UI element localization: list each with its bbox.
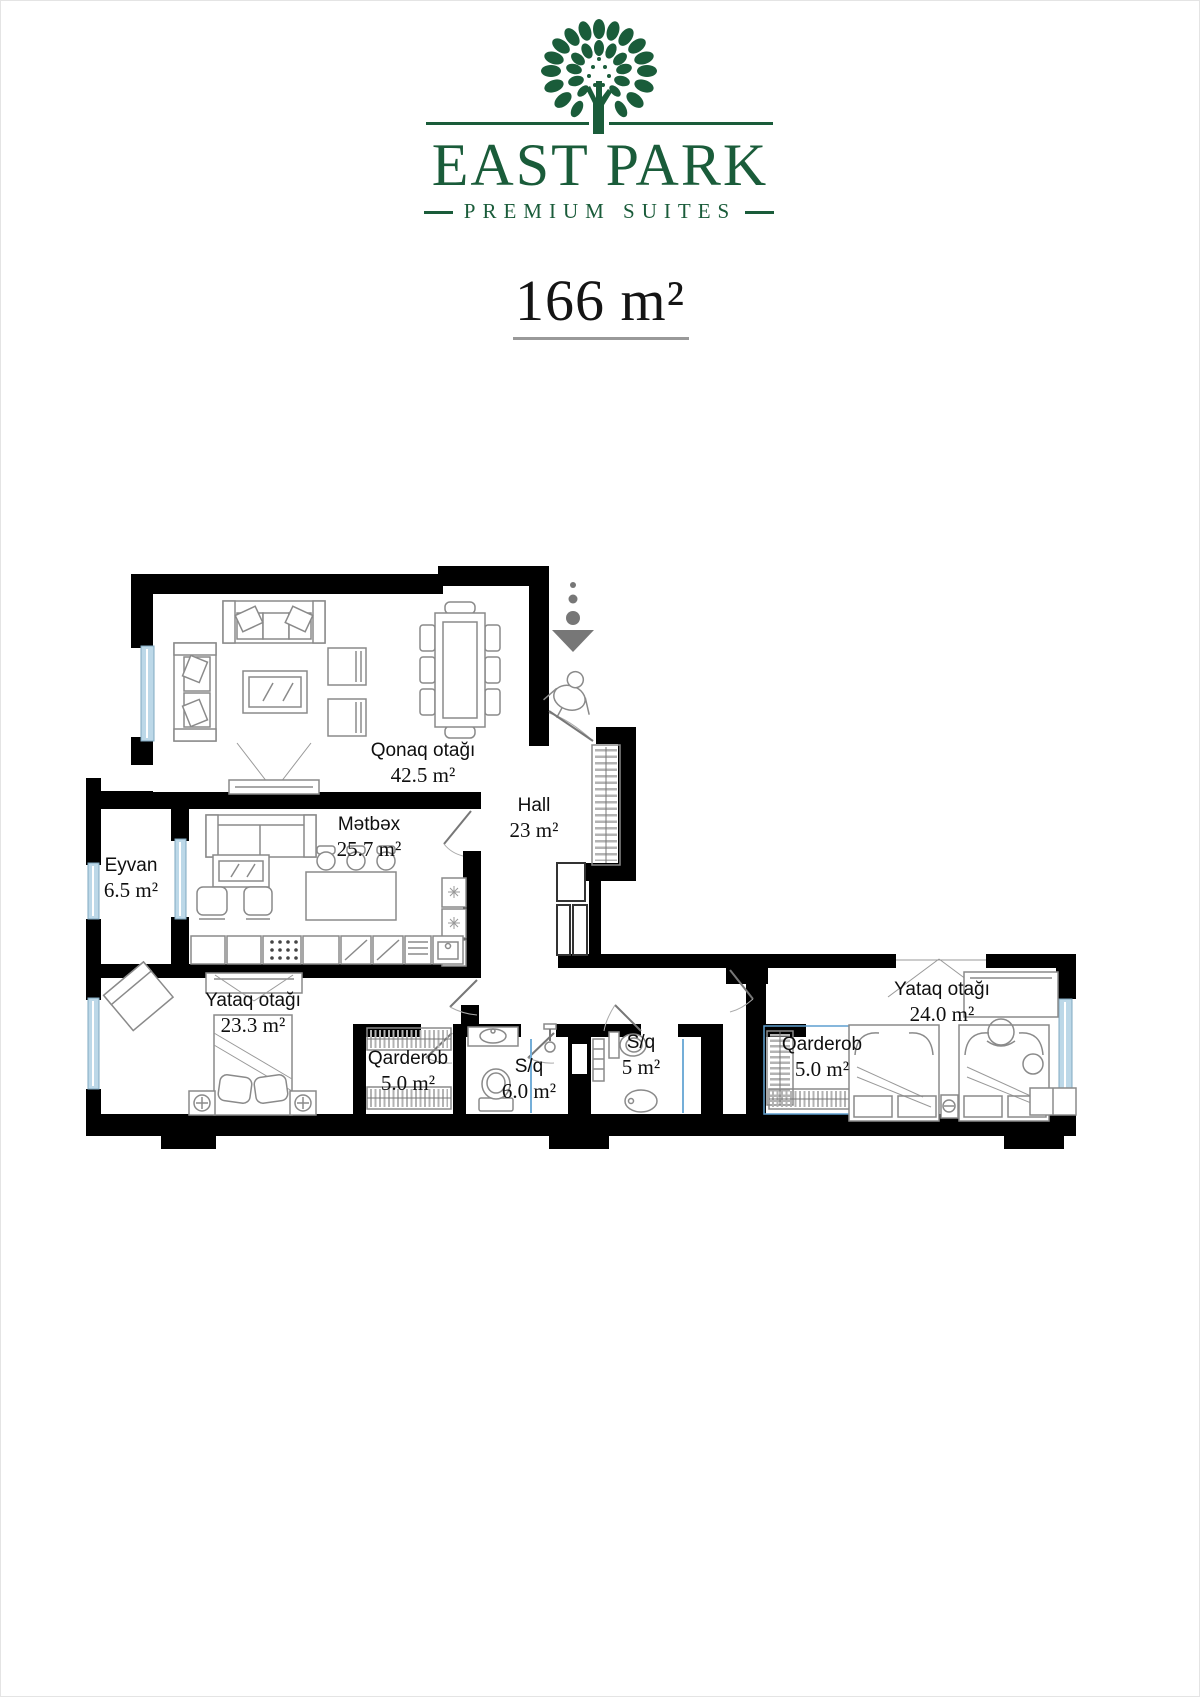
room-label-hall: Hall 23 m²: [510, 796, 559, 842]
entrance-door-swing: [549, 711, 593, 741]
room-name: Hall: [510, 796, 559, 817]
room-label-yataq-left: Yataq otağı 23.3 m²: [205, 991, 301, 1037]
coffee-table: [243, 671, 307, 713]
dining-table: [420, 602, 500, 738]
entrance-arrow-down-icon: [552, 582, 594, 652]
room-area: 5.0 m²: [368, 1072, 448, 1095]
wall-shaft-gap: [572, 1044, 587, 1074]
room-area: 6.0 m²: [502, 1080, 556, 1103]
room-area: 42.5 m²: [371, 764, 476, 787]
room-name: Eyvan: [104, 856, 158, 877]
living-room-sofa-left: [174, 643, 216, 741]
living-room-sofa-top: [223, 601, 325, 643]
armchairs: [328, 648, 366, 736]
hall-closet: [557, 863, 587, 955]
room-label-metbex: Mətbəx 25.7 m²: [337, 815, 402, 861]
room-name: Qarderob: [368, 1049, 448, 1070]
room-area: 6.5 m²: [104, 879, 158, 902]
room-name: S/q: [502, 1057, 556, 1078]
room-label-yataq-right: Yataq otağı 24.0 m²: [894, 980, 990, 1026]
room-area: 5 m²: [622, 1056, 660, 1079]
room-area: 23 m²: [510, 819, 559, 842]
kitchen-mirror: [213, 855, 269, 887]
logo-right-rule: [609, 122, 773, 125]
room-name: Yataq otağı: [894, 980, 990, 1001]
bedroom-right-nightstand: [941, 1095, 958, 1118]
total-area-underline: [513, 337, 689, 340]
kitchen-chairs: [197, 887, 272, 919]
room-label-sq-left: S/q 6.0 m²: [502, 1057, 556, 1103]
floor-plan-page: EAST PARK PREMIUM SUITES 166 m² Qonaq ot…: [0, 0, 1200, 1697]
brand-subtitle: PREMIUM SUITES: [1, 199, 1199, 224]
page-title-total-area: 166 m²: [1, 267, 1199, 334]
kitchen-sofa: [206, 815, 316, 857]
room-label-sq-right: S/q 5 m²: [622, 1033, 660, 1079]
room-label-qonaq-otagi: Qonaq otağı 42.5 m²: [371, 741, 476, 787]
room-area: 25.7 m²: [337, 838, 402, 861]
room-area: 24.0 m²: [894, 1003, 990, 1026]
room-name: Yataq otağı: [205, 991, 301, 1012]
brand-name: EAST PARK: [1, 131, 1199, 200]
room-area: 5.0 m²: [782, 1058, 862, 1081]
room-name: Qonaq otağı: [371, 741, 476, 762]
room-name: Mətbəx: [337, 815, 402, 836]
hall-wardrobe: [592, 745, 620, 865]
kitchen-counter: [191, 936, 463, 964]
logo-left-rule: [426, 122, 589, 125]
room-label-qarderob-right: Qarderob 5.0 m²: [782, 1035, 862, 1081]
room-name: S/q: [622, 1033, 660, 1054]
living-room-tv: [229, 743, 319, 794]
bedroom-right-bed-1: [849, 1025, 939, 1121]
floor-plan-graphic: [1, 1, 1200, 1697]
room-label-qarderob-left: Qarderob 5.0 m²: [368, 1049, 448, 1095]
room-area: 23.3 m²: [205, 1014, 301, 1037]
room-label-eyvan: Eyvan 6.5 m²: [104, 856, 158, 902]
room-name: Qarderob: [782, 1035, 862, 1056]
